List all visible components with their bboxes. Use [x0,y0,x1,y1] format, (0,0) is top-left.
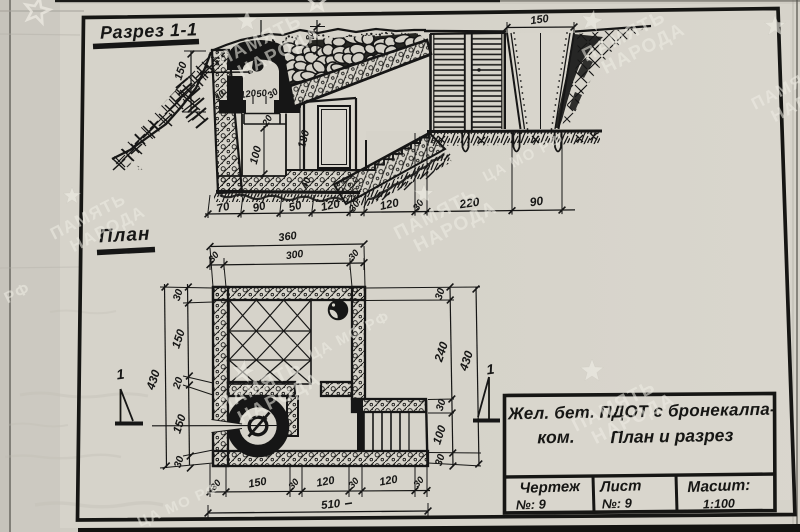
svg-text:Разрез 1-1: Разрез 1-1 [100,19,198,42]
svg-text:№: 9: №: 9 [602,495,633,511]
svg-text:ком.: ком. [537,427,575,448]
svg-text:Лист: Лист [599,477,642,495]
svg-text:300: 300 [285,248,304,262]
svg-text:Масшт:: Масшт: [687,477,751,496]
svg-text:Чертеж: Чертеж [519,478,581,497]
svg-text:№: 9: №: 9 [516,496,547,512]
svg-text:510: 510 [321,498,342,512]
svg-text:1:100: 1:100 [703,496,735,511]
svg-text:90: 90 [529,194,544,210]
